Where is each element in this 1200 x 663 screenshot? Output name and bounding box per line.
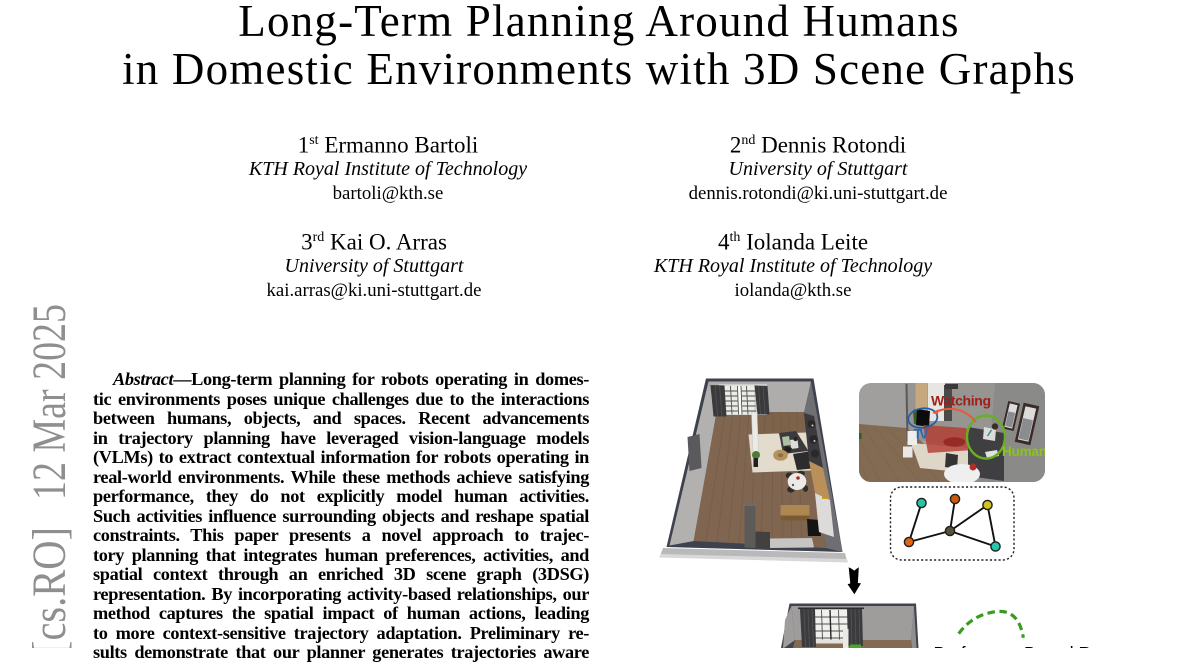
svg-text:12 Mar 2025: 12 Mar 2025 — [23, 304, 76, 500]
svg-text:Watching: Watching — [931, 393, 991, 409]
svg-text:Preference Based Replan: Preference Based Replan — [934, 643, 1101, 648]
svg-text:TV: TV — [914, 426, 930, 442]
svg-text:[cs.RO]: [cs.RO] — [23, 527, 76, 648]
svg-text:Human: Human — [1002, 444, 1047, 459]
